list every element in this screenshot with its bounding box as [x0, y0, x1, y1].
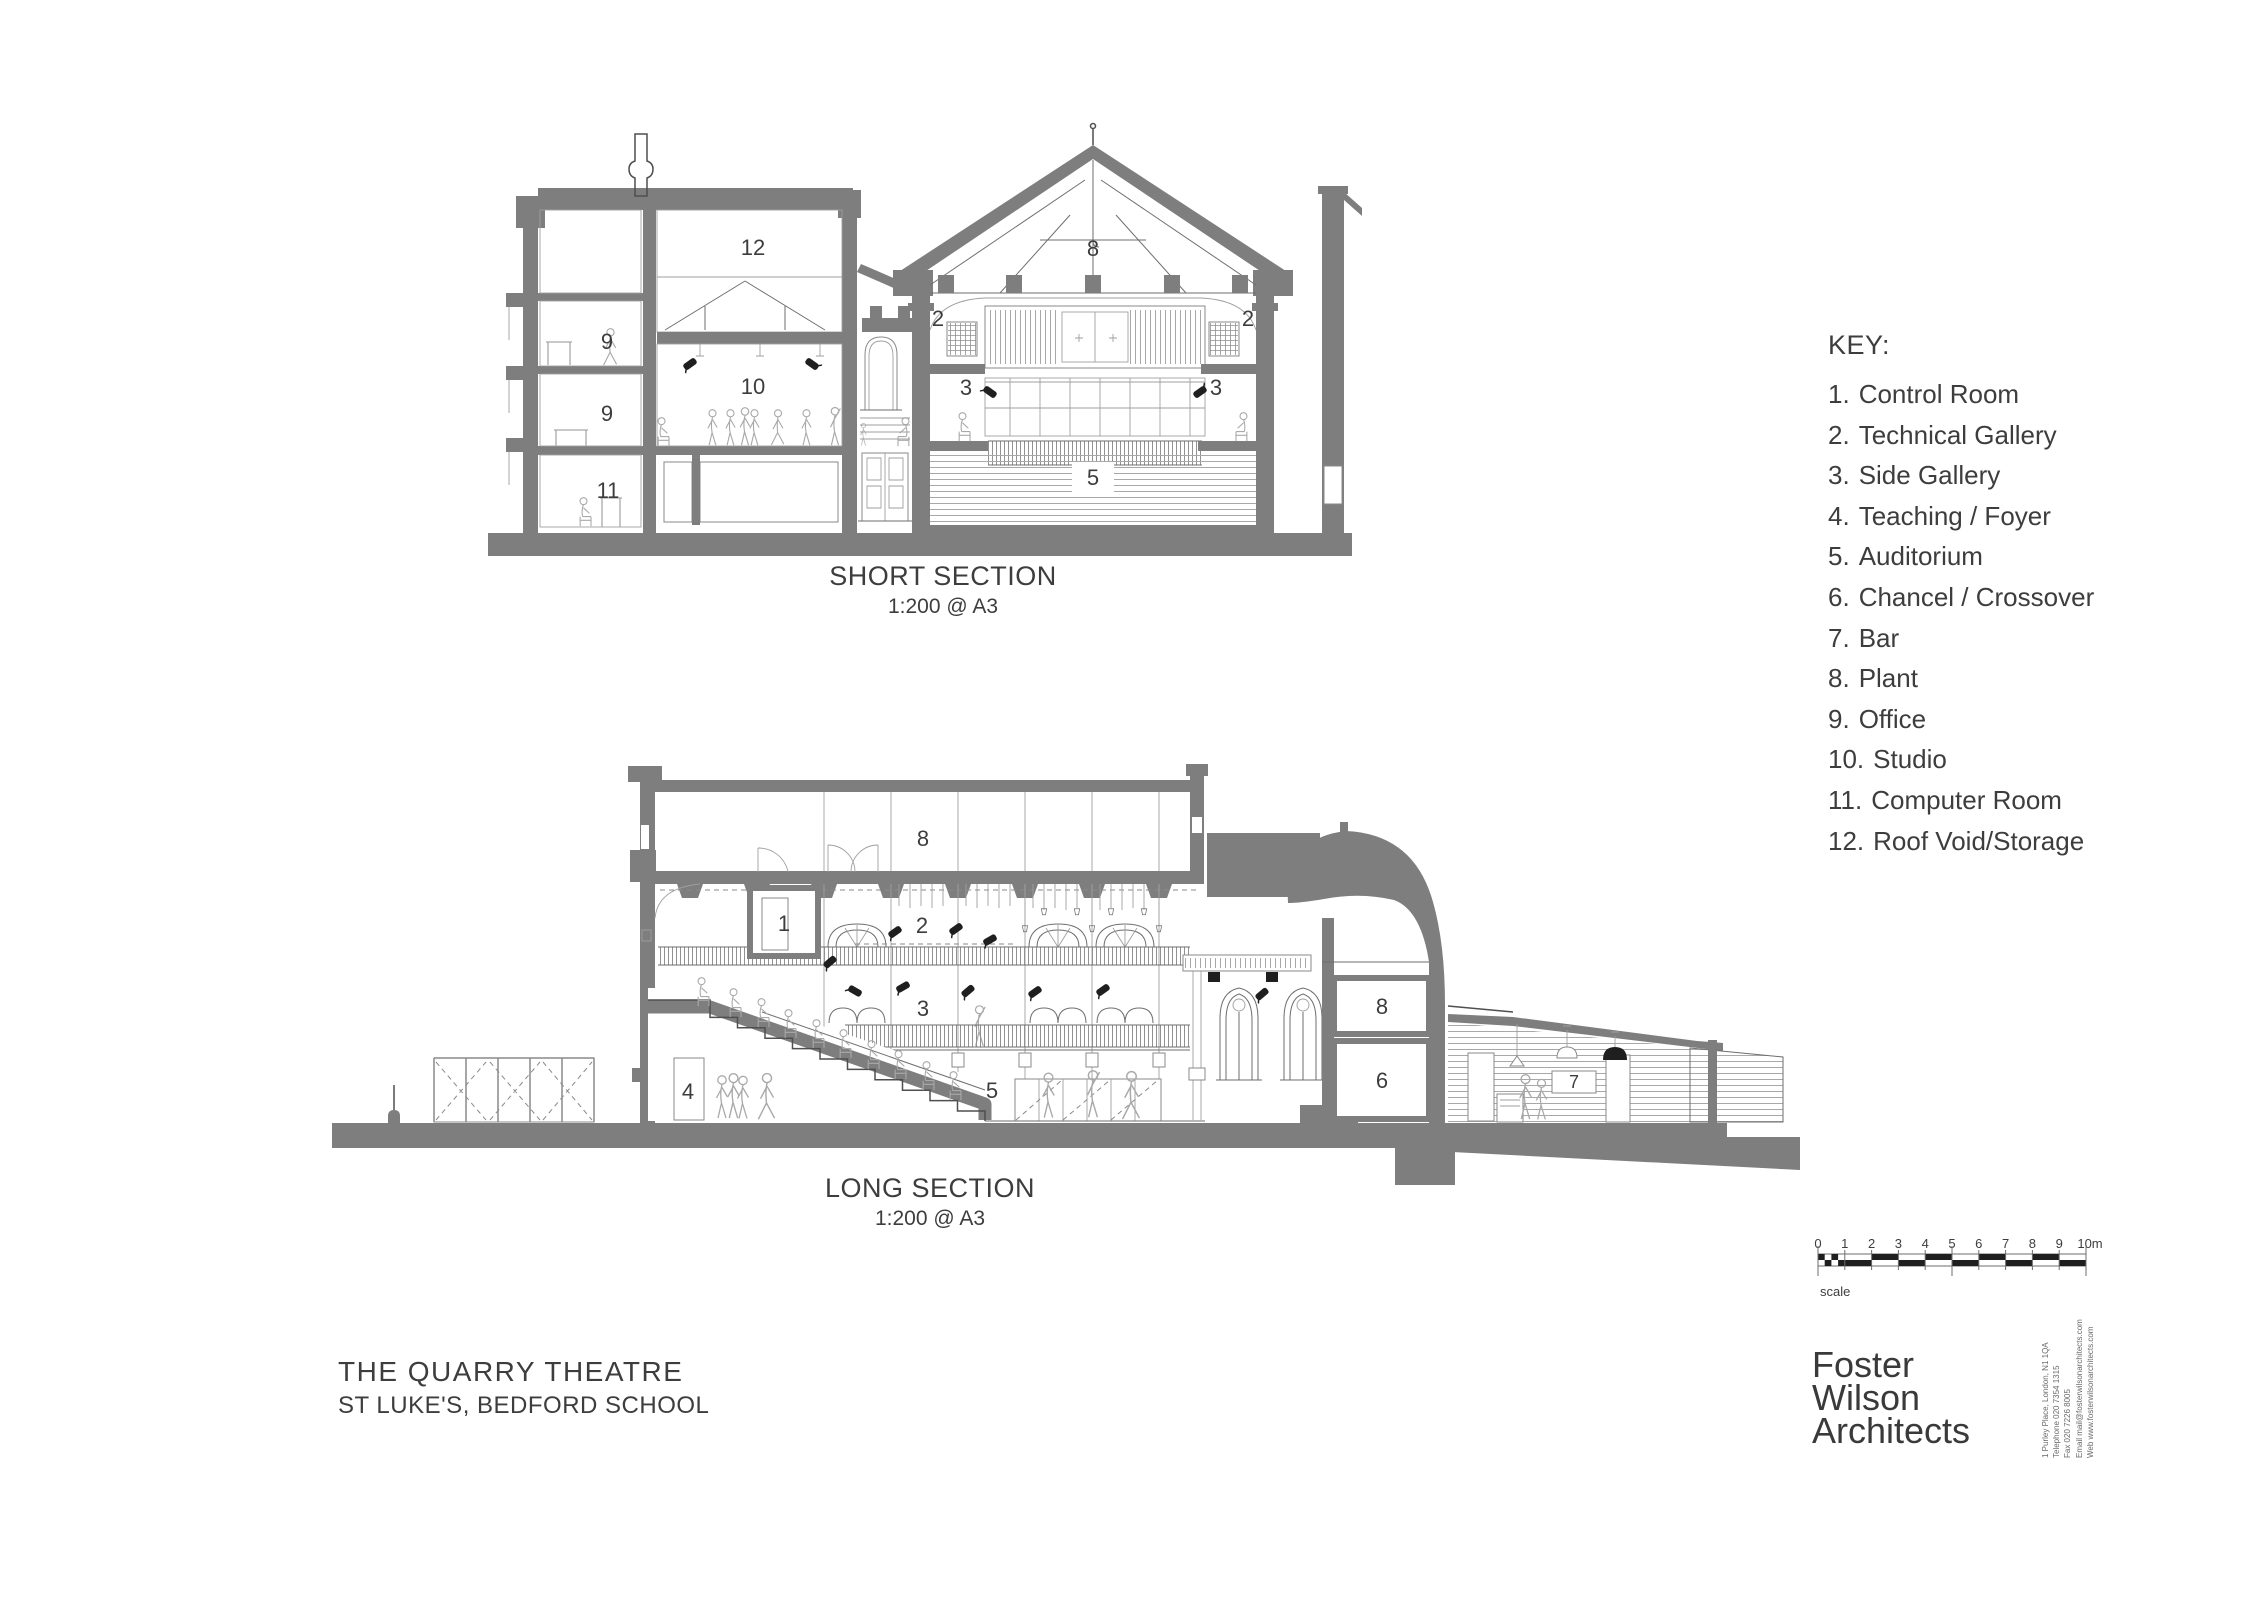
key-item: 4.Teaching / Foyer — [1828, 496, 2094, 537]
key-legend: KEY: 1.Control Room 2.Technical Gallery … — [1828, 330, 2094, 861]
key-item: 12.Roof Void/Storage — [1828, 821, 2094, 862]
long-section-title: LONG SECTION — [770, 1173, 1090, 1204]
spotlight-icon — [947, 922, 965, 938]
spotlight-icon — [886, 925, 904, 941]
room-label-side-gallery: 3 — [917, 996, 929, 1021]
chimney — [629, 134, 653, 196]
firm-name-line: Architects — [1812, 1414, 1970, 1447]
scale-tick: 3 — [1895, 1236, 1902, 1251]
spotlight-icon — [893, 980, 911, 995]
long-section-title-block: LONG SECTION 1:200 @ A3 — [770, 1173, 1090, 1231]
key-item: 10.Studio — [1828, 739, 2094, 780]
key-item: 9.Office — [1828, 699, 2094, 740]
room-label-tech-gallery: 2 — [916, 913, 928, 938]
project-title-block: THE QUARRY THEATRE ST LUKE'S, BEDFORD SC… — [338, 1356, 709, 1420]
room-label-office-lower: 9 — [601, 401, 613, 426]
room-label-office-upper: 9 — [601, 329, 613, 354]
scale-tick: 6 — [1975, 1236, 1982, 1251]
key-item: 5.Auditorium — [1828, 536, 2094, 577]
scale-tick: 1 — [1841, 1236, 1848, 1251]
key-item: 11.Computer Room — [1828, 780, 2094, 821]
spotlight-icon — [959, 984, 977, 1001]
room-label-bar: 7 — [1569, 1072, 1579, 1092]
spotlight-icon — [1026, 985, 1044, 1001]
room-label-plant: 8 — [1087, 236, 1099, 261]
key-title: KEY: — [1828, 330, 2094, 361]
scale-tick: 8 — [2029, 1236, 2036, 1251]
key-item: 3.Side Gallery — [1828, 455, 2094, 496]
long-section-drawing: 8 1 2 3 5 4 8 6 7 — [332, 764, 1800, 1185]
scale-bar: 0 1 2 3 4 5 6 7 8 9 10m scale — [1814, 1236, 2102, 1299]
key-item: 6.Chancel / Crossover — [1828, 577, 2094, 618]
key-item: 8.Plant — [1828, 658, 2094, 699]
spotlight-icon — [1191, 383, 1209, 399]
spotlight-icon — [804, 356, 822, 372]
room-label-studio: 10 — [741, 374, 765, 399]
pendant-light-icon — [1557, 1047, 1577, 1058]
scale-tick: 10m — [2077, 1236, 2102, 1251]
scale-tick: 9 — [2056, 1236, 2063, 1251]
firm-logo: Foster Wilson Architects — [1812, 1348, 1970, 1447]
room-label-tech-gallery-right: 2 — [1242, 306, 1254, 331]
room-label-plant-chancel: 8 — [1376, 994, 1388, 1019]
firm-contact-vertical: Email mail@fosterwilsonarchitects.com We… — [2074, 1319, 2096, 1458]
short-section-title: SHORT SECTION — [783, 561, 1103, 592]
spotlight-icon — [681, 357, 699, 373]
room-label-chancel: 6 — [1376, 1068, 1388, 1093]
room-label-computer-room: 11 — [597, 478, 620, 503]
scale-caption: scale — [1820, 1284, 1850, 1299]
key-item: 7.Bar — [1828, 618, 2094, 659]
project-subtitle: ST LUKE'S, BEDFORD SCHOOL — [338, 1392, 709, 1420]
long-section-scale: 1:200 @ A3 — [770, 1207, 1090, 1231]
room-label-plant: 8 — [917, 826, 929, 851]
short-section-drawing: 12 9 9 10 11 8 2 2 3 3 5 — [488, 124, 1362, 557]
room-label-teaching-foyer: 4 — [682, 1079, 694, 1104]
spotlight-icon — [1094, 983, 1112, 999]
short-section-scale: 1:200 @ A3 — [783, 595, 1103, 619]
spotlight-icon — [980, 384, 998, 400]
drawing-sheet: 12 9 9 10 11 8 2 2 3 3 5 — [0, 0, 2263, 1600]
firm-address-vertical: 1 Purley Place, London, N1 1QA Telephone… — [2040, 1342, 2073, 1458]
spotlight-icon — [845, 983, 863, 998]
scale-tick: 4 — [1922, 1236, 1929, 1251]
room-label-auditorium: 5 — [986, 1078, 998, 1103]
room-label-auditorium: 5 — [1087, 465, 1099, 490]
key-item: 2.Technical Gallery — [1828, 415, 2094, 456]
room-label-control-room: 1 — [778, 911, 790, 936]
room-label-side-gallery-left: 3 — [960, 375, 972, 400]
room-label-tech-gallery-left: 2 — [932, 306, 944, 331]
short-section-title-block: SHORT SECTION 1:200 @ A3 — [783, 561, 1103, 619]
project-title: THE QUARRY THEATRE — [338, 1356, 709, 1388]
room-label-side-gallery-right: 3 — [1210, 375, 1222, 400]
room-label-roof-void: 12 — [741, 235, 765, 260]
key-item: 1.Control Room — [1828, 374, 2094, 415]
scale-tick: 2 — [1868, 1236, 1875, 1251]
scale-tick: 7 — [2002, 1236, 2009, 1251]
